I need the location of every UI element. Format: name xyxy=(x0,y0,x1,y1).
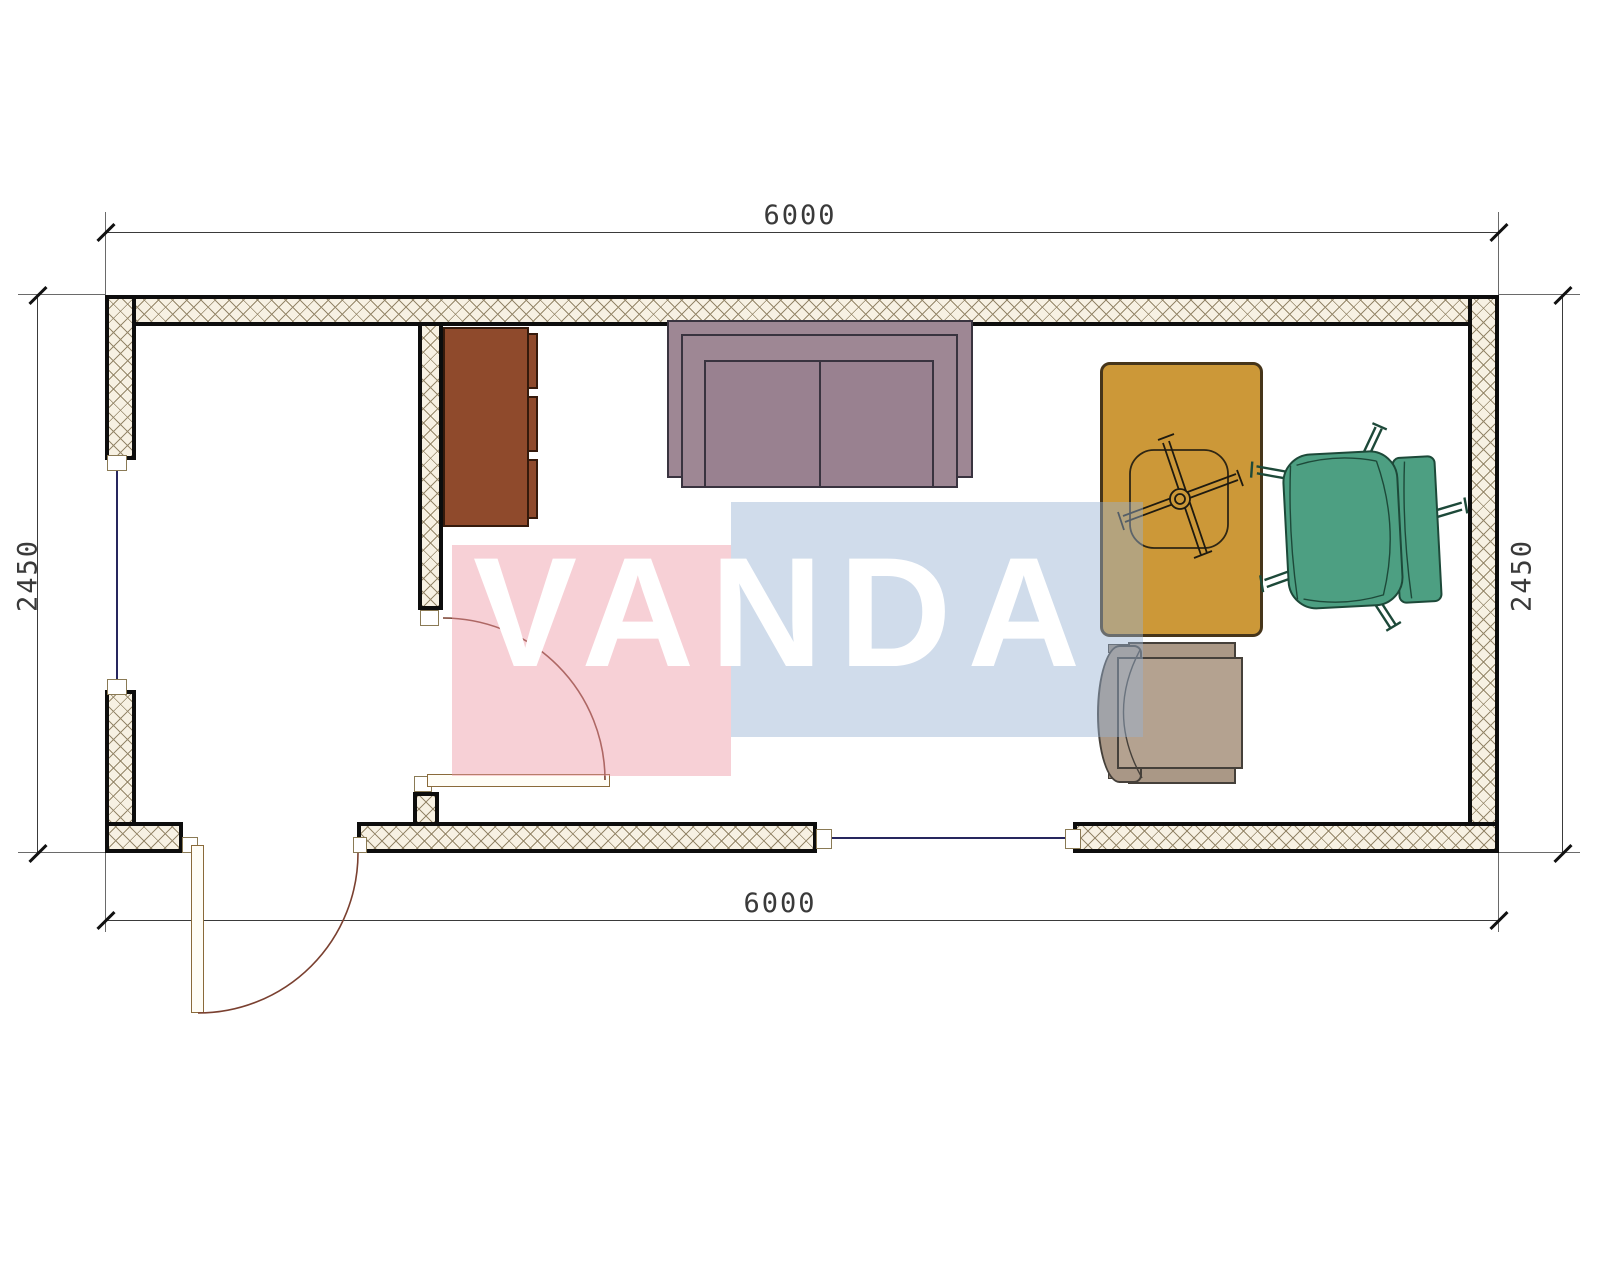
cabinet-drawer-edge-3 xyxy=(527,459,538,519)
dim-tick xyxy=(28,844,47,863)
cabinet-drawer-edge-2 xyxy=(527,396,538,452)
dim-top-line xyxy=(105,232,1498,233)
dim-label-right: 2450 xyxy=(1507,486,1538,666)
watermark-text: VANDA xyxy=(473,535,1096,691)
dim-label-bottom: 6000 xyxy=(680,888,880,919)
window-left-jamb-bottom xyxy=(107,679,127,695)
window-left-glass xyxy=(116,470,118,684)
office-chair-backrest xyxy=(1392,456,1442,603)
office-chair-seat xyxy=(1282,450,1404,610)
dim-tick xyxy=(1553,286,1572,305)
wall-left-upper xyxy=(105,295,136,460)
dim-label-top: 6000 xyxy=(700,200,900,231)
floor-plan-canvas: 6000 6000 2450 2450 xyxy=(0,0,1600,1280)
window-bottom-jamb-left xyxy=(816,829,832,849)
door-exterior-swing-arc xyxy=(198,853,358,1013)
sofa-seat-divider xyxy=(819,362,821,486)
ext-line-right-bottom xyxy=(1499,852,1580,853)
door-exterior-jamb-right xyxy=(353,837,367,853)
ext-line-left-top xyxy=(18,294,105,295)
cabinet xyxy=(443,327,529,527)
window-bottom-glass xyxy=(831,837,1067,839)
dim-tick xyxy=(28,286,47,305)
wall-bottom-right xyxy=(1073,822,1499,853)
dim-bottom-line xyxy=(105,920,1498,921)
sofa-seat xyxy=(704,360,934,488)
dim-tick xyxy=(1553,844,1572,863)
wall-partition xyxy=(418,322,443,610)
dim-right-line xyxy=(1562,295,1563,853)
ext-line-top-right xyxy=(1498,212,1499,295)
window-left-jamb-top xyxy=(107,455,127,471)
door-exterior-leaf xyxy=(191,845,204,1013)
cabinet-drawer-edge-1 xyxy=(527,333,538,389)
office-chair xyxy=(1249,418,1474,637)
wall-bottom-door-stub xyxy=(413,792,439,826)
ext-line-right-top xyxy=(1499,294,1580,295)
door-interior-jamb-top xyxy=(420,610,439,626)
window-bottom-jamb-right xyxy=(1065,829,1081,849)
wall-bottom-left xyxy=(105,822,183,853)
ext-line-left-bottom xyxy=(18,852,105,853)
ext-line-top-left xyxy=(105,212,106,295)
dim-label-left: 2450 xyxy=(13,486,44,666)
wall-right xyxy=(1468,295,1499,853)
wall-bottom-mid xyxy=(357,822,817,853)
